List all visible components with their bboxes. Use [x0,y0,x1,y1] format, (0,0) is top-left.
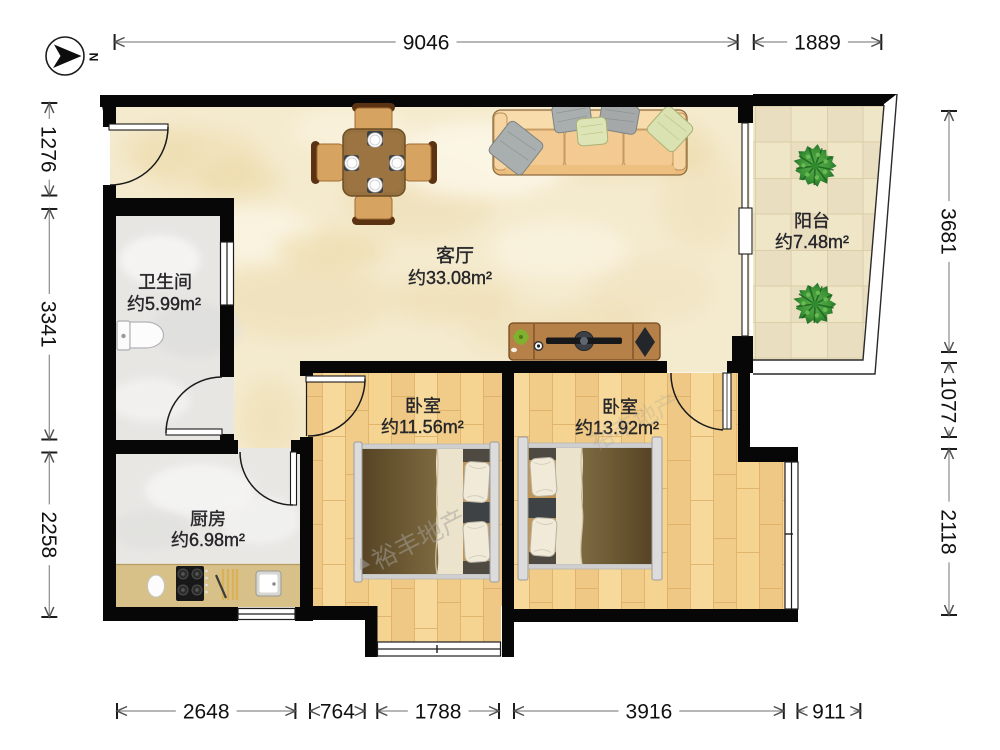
svg-text:33.08m²: 33.08m² [426,268,492,288]
svg-text:6.98m²: 6.98m² [189,530,245,550]
svg-text:2258: 2258 [37,511,60,558]
svg-text:5.99m²: 5.99m² [145,294,201,314]
svg-text:9046: 9046 [403,32,450,55]
svg-text:3916: 3916 [626,701,673,724]
svg-text:2118: 2118 [937,509,960,554]
svg-text:7.48m²: 7.48m² [793,232,849,252]
svg-text:764: 764 [320,701,355,724]
svg-text:3341: 3341 [37,301,60,348]
svg-text:N: N [87,53,101,62]
svg-text:911: 911 [812,701,845,724]
svg-text:1276: 1276 [37,126,60,173]
svg-text:1788: 1788 [415,701,462,724]
svg-text:1889: 1889 [794,32,841,55]
svg-text:3681: 3681 [937,208,960,255]
svg-text:1077: 1077 [937,377,960,424]
svg-text:2648: 2648 [183,701,230,724]
svg-text:11.56m²: 11.56m² [399,417,464,437]
